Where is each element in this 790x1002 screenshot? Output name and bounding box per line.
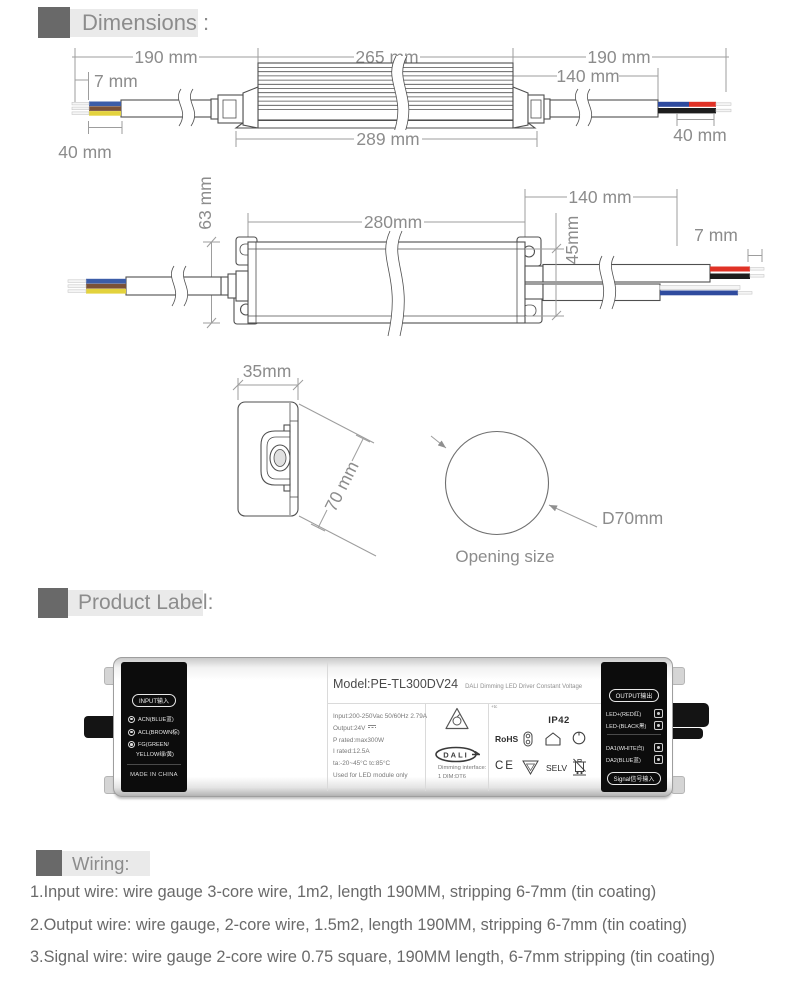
spec-p-rated: P rated:max300W [333,735,427,747]
opening-diameter-label: D70mm [602,508,663,528]
dim-label-strip-len-right: 40 mm [673,125,726,145]
dim-label-strip7: 7 mm [694,225,738,245]
input-wires [72,102,121,116]
label-divider [327,703,601,704]
selv-mark: SELV [546,763,567,773]
end-view-group: 35mm 70 mm [233,361,376,556]
terminal-fg-label-1: FG(GREEN/ [138,742,169,748]
dim-label-width35: 35mm [243,361,292,381]
quality-triangle-icon [444,706,470,732]
label-output-panel: OUTPUT输出 LED+(RED红) LED-(BLACK黑) DA1(WHI… [601,662,667,792]
terminal-acl-label: ACL(BROWN棕) [138,728,180,736]
terminal-acn-label: ACN(BLUE蓝) [138,715,174,723]
product-label-section-header: Product Label: [38,590,203,616]
dimming-interface-line2: 1 DIM:DT6 [438,773,486,782]
section-marker-square-icon [36,850,62,876]
dali-logo-icon: DALI [434,746,480,763]
output-badge: OUTPUT输出 [609,689,660,702]
terminal-fg-line2: YELLOW绿/黄) [136,750,174,758]
made-in-china: MADE IN CHINA [121,772,187,778]
spec-list: Input:200-250Vac 50/60Hz 2.79A Output:24… [333,711,427,782]
input-wires-top [68,279,126,294]
connector-icon [654,721,663,730]
dimming-interface-line1: Dimming interface: [438,764,486,773]
ip-rating: IP42 [534,715,584,726]
terminal-acl: ACL(BROWN棕) [128,728,180,736]
dali-logo-text: DALI [443,751,469,760]
fuse-mark-icon [523,731,533,747]
terminal-fg: FG(GREEN/ [128,741,169,748]
model-subtitle: DALI Dimming LED Driver Constant Voltage [465,684,582,690]
signal-badge-wrap: Signal信号输入 [601,768,667,786]
wiring-item-3: 3.Signal wire: wire gauge 2-core wire 0.… [30,948,762,968]
connector-icon [654,755,663,764]
label-divider [327,662,328,791]
panel-divider [607,734,661,735]
top-view-group: 63 mm 280mm 140 mm [68,176,764,336]
dc-symbol-icon [368,725,376,730]
connector-icon [654,709,663,718]
wiring-section-title: Wiring: [72,853,130,875]
spec-usage: Used for LED module only [333,770,427,782]
circle-mark-icon [572,731,586,745]
spec-output-text: Output:24V [333,725,365,732]
dim-label-width45: 45mm [562,216,582,265]
label-clip-icon [671,667,685,685]
product-label-section-title: Product Label: [78,591,213,615]
model-title: Model:PE-TL300DV24 [333,677,458,691]
spec-i-rated: I rated:12.5A [333,746,427,758]
rohs-mark: RoHS [495,734,518,744]
terminal-fg-label-2: YELLOW绿/黄) [136,750,174,758]
dimming-interface: Dimming interface: 1 DIM:DT6 [438,764,486,781]
terminal-da1: DA1(WHITE白) [606,743,663,752]
model-heading: Model:PE-TL300DV24 DALI Dimming LED Driv… [333,677,582,691]
side-view-group: 190 mm 265 mm 190 mm 140 mm 7 mm [58,47,731,162]
da2-label: DA2(BLUE蓝) [606,756,641,764]
opening-circle-group: D70mm Opening size [431,432,663,567]
wiring-notes: 1.Input wire: wire gauge 3-core wire, 1m… [30,883,762,981]
terminal-acn: ACN(BLUE蓝) [128,715,174,723]
tc-note: +tc [491,704,497,709]
spec-output: Output:24V [333,723,427,735]
label-divider [488,703,489,791]
device-label: INPUT输入 ACN(BLUE蓝) ACL(BROWN棕) FG(GREEN/… [113,657,673,797]
spec-input: Input:200-250Vac 50/60Hz 2.79A [333,711,427,723]
weee-bin-icon [572,757,587,776]
page: Dimensions : 190 mm 265 mm 190 mm [0,0,790,1002]
connector-icon [654,743,663,752]
terminal-icon [128,716,135,723]
terminal-led-plus: LED+(RED红) [606,709,663,718]
dim-label-top-body: 280mm [364,212,422,232]
label-input-panel: INPUT输入 ACN(BLUE蓝) ACL(BROWN棕) FG(GREEN/… [121,662,187,792]
dim-label-height: 63 mm [195,176,215,229]
output-wires [658,102,731,114]
indoor-use-icon [545,732,561,746]
wiring-section-header: Wiring: [36,851,150,876]
terminal-icon [128,729,135,736]
input-badge: INPUT输入 [132,694,176,707]
dim-label-strip-left: 7 mm [94,71,138,91]
output-badge-wrap: OUTPUT输出 [601,685,667,703]
spec-temperature: ta:-20~45°C tc:85°C [333,758,427,770]
dim-label-body-flange: 289 mm [356,129,419,149]
dimensions-drawing: 190 mm 265 mm 190 mm 140 mm 7 mm [0,0,790,585]
led-minus-label: LED-(BLACK黑) [606,722,646,730]
dim-label-wire-right: 190 mm [587,47,650,67]
label-clip-icon [671,776,685,794]
panel-divider [127,764,181,765]
terminal-da2: DA2(BLUE蓝) [606,755,663,764]
dim-label-cable-right: 140 mm [556,66,619,86]
section-marker-square-icon [38,588,68,618]
wiring-item-1: 1.Input wire: wire gauge 3-core wire, 1m… [30,883,762,903]
opening-caption: Opening size [455,547,554,566]
vde-triangle-icon [522,760,539,775]
dali-column: DALI [426,706,488,768]
ground-terminal-icon [128,741,135,748]
led-plus-label: LED+(RED红) [606,710,641,718]
dim-label-diag70: 70 mm [321,458,363,515]
dim-label-wire-left: 190 mm [134,47,197,67]
input-badge-wrap: INPUT输入 [121,690,187,708]
wiring-item-2: 2.Output wire: wire gauge, 2-core wire, … [30,916,762,936]
ce-mark: CE [495,760,515,772]
dim-label-strip-len-left: 40 mm [58,142,111,162]
dim-label-top-cable: 140 mm [568,187,631,207]
terminal-led-minus: LED-(BLACK黑) [606,721,663,730]
signal-badge: Signal信号输入 [607,772,662,785]
da1-label: DA1(WHITE白) [606,744,644,752]
